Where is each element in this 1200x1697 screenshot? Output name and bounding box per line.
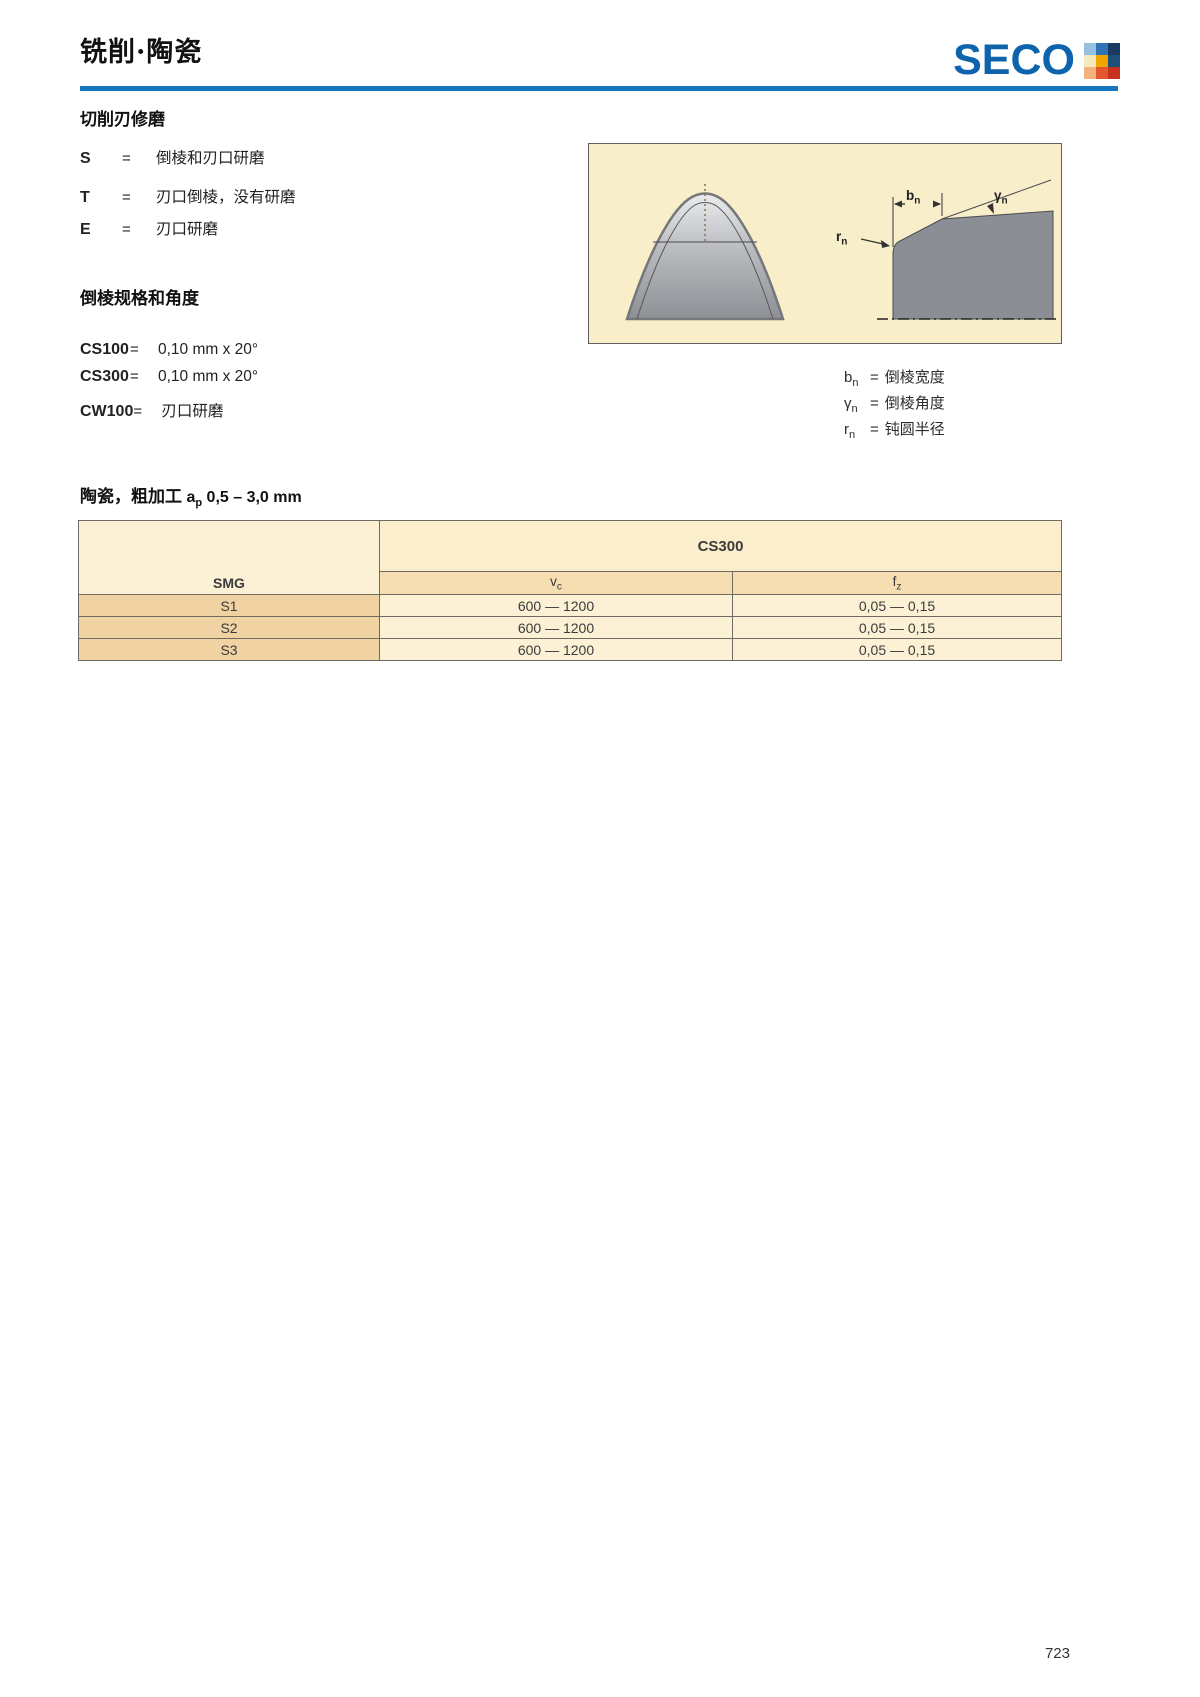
fz-value-cell: 0,05 — 0,15 [733, 617, 1062, 639]
smg-grade-cell: S3 [79, 639, 380, 661]
logo-square [1084, 55, 1096, 67]
page-title: 铣削·陶瓷 [80, 30, 202, 69]
legend-desc: 倒棱角度 [885, 392, 945, 413]
gamma-angle-arrowhead [987, 203, 994, 214]
vc-value-cell: 600 — 1200 [380, 639, 733, 661]
edge-def-row: S = 倒棱和刃口研磨 [80, 146, 265, 168]
legend-desc: 倒棱宽度 [885, 366, 945, 387]
logo-square [1096, 43, 1108, 55]
vc-column-header: vc [380, 572, 733, 595]
edge-code: S [80, 150, 122, 168]
edge-desc: 倒棱和刃口研磨 [156, 146, 265, 168]
bn-arrowhead-right [933, 201, 941, 208]
fz-value-cell: 0,05 — 0,15 [733, 595, 1062, 617]
legend-symbol: bn [844, 369, 868, 389]
rn-arrowhead [881, 240, 890, 248]
diagram-legend: bn = 倒棱宽度 γn = 倒棱角度 rn = 钝圆半径 [844, 366, 945, 444]
equals-sign: = [122, 150, 156, 167]
edge-def-row: T = 刃口倒棱，没有研磨 [80, 185, 296, 207]
edge-def-row: E = 刃口研磨 [80, 217, 218, 239]
edge-code: E [80, 221, 122, 239]
logo-square [1096, 67, 1108, 79]
equals-sign: = [122, 189, 156, 206]
bn-label: bn [906, 188, 920, 207]
legend-line: γn = 倒棱角度 [844, 392, 945, 418]
logo-square [1108, 67, 1120, 79]
chamfer-code: CS100 [80, 341, 130, 359]
rn-label: rn [836, 229, 847, 248]
smg-column-header: SMG [79, 521, 380, 595]
chamfer-code: CW100 [80, 403, 133, 421]
edge-desc: 刃口倒棱，没有研磨 [156, 185, 296, 207]
logo-square [1108, 55, 1120, 67]
fz-column-header: fz [733, 572, 1062, 595]
table-title-ap: ap 0,5 – 3,0 mm [186, 489, 301, 506]
edge-geometry-diagram: bn γn rn [588, 143, 1062, 344]
legend-symbol: γn [844, 395, 868, 415]
fz-value-cell: 0,05 — 0,15 [733, 639, 1062, 661]
logo-square [1096, 55, 1108, 67]
logo-squares [1084, 43, 1120, 79]
equals-sign: = [130, 368, 158, 385]
cutting-data-grid: SMG CS300 vc fz S1 600 — 1200 0,05 — 0,1… [78, 520, 1062, 661]
page-number: 723 [1010, 1645, 1070, 1662]
edge-geometry-illustration [589, 144, 1061, 343]
rn-pointer-line [861, 239, 883, 244]
table-row-group-header: SMG CS300 [79, 521, 1062, 572]
chamfer-value: 刃口研磨 [161, 399, 223, 421]
chamfer-code: CS300 [80, 368, 130, 386]
insert-nose-shape [627, 194, 783, 320]
edge-cross-section [893, 211, 1053, 319]
chamfer-section-heading: 倒棱规格和角度 [80, 284, 199, 309]
equals-sign: = [870, 395, 879, 412]
table-title: 陶瓷，粗加工 ap 0,5 – 3,0 mm [80, 482, 302, 509]
cutting-data-table: SMG CS300 vc fz S1 600 — 1200 0,05 — 0,1… [78, 520, 1062, 661]
logo-square [1108, 43, 1120, 55]
equals-sign: = [870, 421, 879, 438]
table-title-text: 陶瓷，粗加工 [80, 487, 182, 507]
equals-sign: = [870, 369, 879, 386]
legend-line: bn = 倒棱宽度 [844, 366, 945, 392]
legend-line: rn = 钝圆半径 [844, 418, 945, 444]
seco-logo-text: SECO [953, 42, 1075, 79]
edge-code: T [80, 189, 122, 207]
table-row: S1 600 — 1200 0,05 — 0,15 [79, 595, 1062, 617]
gamma-label: γn [994, 188, 1008, 207]
smg-grade-cell: S1 [79, 595, 380, 617]
legend-desc: 钝圆半径 [885, 418, 945, 439]
cs300-group-header: CS300 [380, 521, 1062, 572]
chamfer-value: 0,10 mm x 20° [158, 341, 258, 359]
smg-grade-cell: S2 [79, 617, 380, 639]
chamfer-row: CS100 = 0,10 mm x 20° [80, 341, 258, 359]
edge-desc: 刃口研磨 [156, 217, 218, 239]
edge-section-heading: 切削刃修磨 [80, 105, 165, 130]
bn-arrowhead-left [894, 201, 902, 208]
equals-sign: = [130, 341, 158, 358]
logo-square [1084, 43, 1096, 55]
vc-value-cell: 600 — 1200 [380, 617, 733, 639]
chamfer-row: CS300 = 0,10 mm x 20° [80, 368, 258, 386]
seco-logo: SECO [922, 42, 1120, 79]
chamfer-row: CW100 = 刃口研磨 [80, 399, 223, 421]
vc-value-cell: 600 — 1200 [380, 595, 733, 617]
equals-sign: = [122, 221, 156, 238]
logo-square [1084, 67, 1096, 79]
legend-symbol: rn [844, 421, 868, 441]
table-row: S3 600 — 1200 0,05 — 0,15 [79, 639, 1062, 661]
chamfer-value: 0,10 mm x 20° [158, 368, 258, 386]
table-row: S2 600 — 1200 0,05 — 0,15 [79, 617, 1062, 639]
header-rule [80, 86, 1118, 91]
equals-sign: = [133, 403, 161, 420]
